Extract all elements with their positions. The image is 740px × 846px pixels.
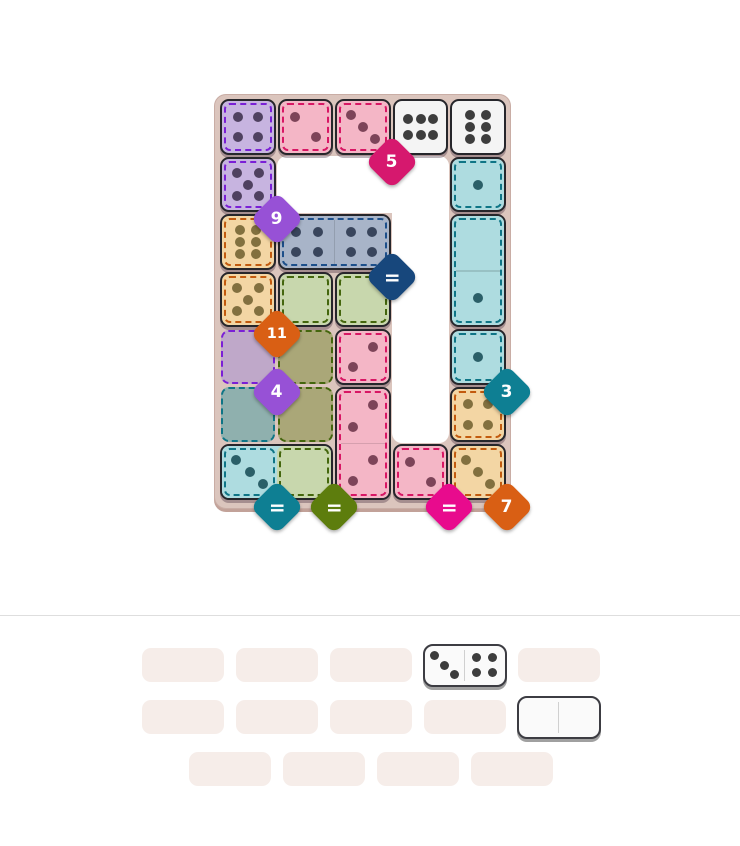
pip: [232, 283, 242, 293]
pip: [416, 114, 426, 124]
pip: [472, 653, 481, 662]
badge-diamond: 4: [250, 365, 304, 419]
pip: [488, 668, 497, 677]
pip: [488, 653, 497, 662]
badge-label: =: [441, 497, 458, 517]
pip: [243, 295, 253, 305]
board-given-cell-r1c5: [450, 99, 506, 155]
pip: [235, 225, 245, 235]
badge-diamond: 3: [480, 365, 534, 419]
pip: [473, 467, 483, 477]
placed-domino-r6c3[interactable]: [335, 387, 391, 500]
constraint-badge-5: 5: [373, 143, 411, 181]
badge-diamond: 5: [365, 135, 419, 189]
pip: [416, 130, 426, 140]
constraint-badge-equals-green-1: =: [315, 488, 353, 526]
badge-label: 11: [267, 327, 287, 342]
pip: [405, 457, 415, 467]
badge-label: =: [326, 497, 343, 517]
pip: [426, 477, 436, 487]
pip: [450, 670, 459, 679]
pip: [253, 112, 263, 122]
pip: [243, 180, 253, 190]
pip: [348, 362, 358, 372]
board-hole: [392, 156, 450, 444]
badge-label: =: [268, 497, 285, 517]
tray-slot-3-4: [471, 752, 553, 786]
constraint-badge-equals-navy-1: =: [373, 258, 411, 296]
pip: [403, 130, 413, 140]
domino-divider: [464, 650, 465, 681]
badge-diamond: =: [365, 250, 419, 304]
pip: [481, 122, 491, 132]
tray-slot-3-2: [283, 752, 365, 786]
board-given-cell-r2c5: [450, 157, 506, 213]
region-dash: [224, 103, 272, 151]
pip: [290, 112, 300, 122]
constraint-badge-4: 4: [258, 373, 296, 411]
tray-slot-2-4: [424, 700, 506, 734]
game-stage: 95=114===37: [0, 0, 740, 846]
tray-slot-1-2: [236, 648, 318, 682]
page-divider: [0, 615, 740, 616]
constraint-badge-9: 9: [258, 200, 296, 238]
pip: [472, 668, 481, 677]
pip: [368, 342, 378, 352]
domino-half: [337, 389, 389, 444]
badge-label: 9: [271, 211, 283, 228]
pip: [473, 180, 483, 190]
pip: [465, 122, 475, 132]
pip: [463, 420, 473, 430]
region-dash: [339, 333, 387, 381]
pip: [358, 122, 368, 132]
pip: [483, 420, 493, 430]
badge-label: 3: [501, 383, 513, 400]
badge-label: 7: [501, 498, 513, 515]
domino-half: [452, 271, 504, 326]
pip: [235, 249, 245, 259]
tray-slot-2-1: [142, 700, 224, 734]
tray-slot-1-3: [330, 648, 412, 682]
constraint-badge-3: 3: [488, 373, 526, 411]
board-given-cell-r1c1: [220, 99, 276, 155]
pip: [481, 134, 491, 144]
pip: [253, 132, 263, 142]
pip: [232, 168, 242, 178]
constraint-badge-equals-teal-2: =: [258, 488, 296, 526]
constraint-badge-7: 7: [488, 488, 526, 526]
tray-domino-3-4[interactable]: [423, 644, 507, 687]
pip: [232, 191, 242, 201]
pip: [428, 130, 438, 140]
badge-diamond: 7: [480, 480, 534, 534]
badge-label: =: [383, 267, 400, 287]
pip: [430, 651, 439, 660]
pip: [465, 134, 475, 144]
pip: [232, 306, 242, 316]
domino-half: [452, 216, 504, 271]
pip: [251, 249, 261, 259]
pip: [461, 455, 471, 465]
pip: [233, 132, 243, 142]
placed-domino-r3c5[interactable]: [450, 214, 506, 327]
badge-diamond: =: [250, 480, 304, 534]
pip: [346, 110, 356, 120]
board-given-cell-r1c2: [278, 99, 334, 155]
badge-label: 5: [386, 153, 398, 170]
tray-slot-3-1: [189, 752, 271, 786]
badge-diamond: 11: [250, 307, 304, 361]
pip: [473, 352, 483, 362]
pip: [440, 661, 449, 670]
tray-slot-3-3: [377, 752, 459, 786]
pip: [311, 132, 321, 142]
pip: [481, 110, 491, 120]
pip: [233, 112, 243, 122]
tray-domino-blank[interactable]: [517, 696, 601, 739]
badge-diamond: =: [422, 480, 476, 534]
pip: [254, 168, 264, 178]
badge-diamond: =: [307, 480, 361, 534]
board-given-cell-r5c3: [335, 329, 391, 385]
domino-divider: [558, 702, 559, 733]
pip: [251, 237, 261, 247]
badge-diamond: 9: [250, 192, 304, 246]
region-dash: [454, 161, 502, 209]
pip: [254, 283, 264, 293]
constraint-badge-equals-crimson-2: =: [430, 488, 468, 526]
pip: [428, 114, 438, 124]
tray-slot-1-1: [142, 648, 224, 682]
pip: [463, 399, 473, 409]
pip: [403, 114, 413, 124]
badge-label: 4: [271, 383, 283, 400]
pip: [235, 237, 245, 247]
pip: [465, 110, 475, 120]
tray-slot-1-5: [518, 648, 600, 682]
region-dash: [282, 103, 330, 151]
tray-slot-2-2: [236, 700, 318, 734]
constraint-badge-11: 11: [258, 315, 296, 353]
tray-slot-2-3: [330, 700, 412, 734]
